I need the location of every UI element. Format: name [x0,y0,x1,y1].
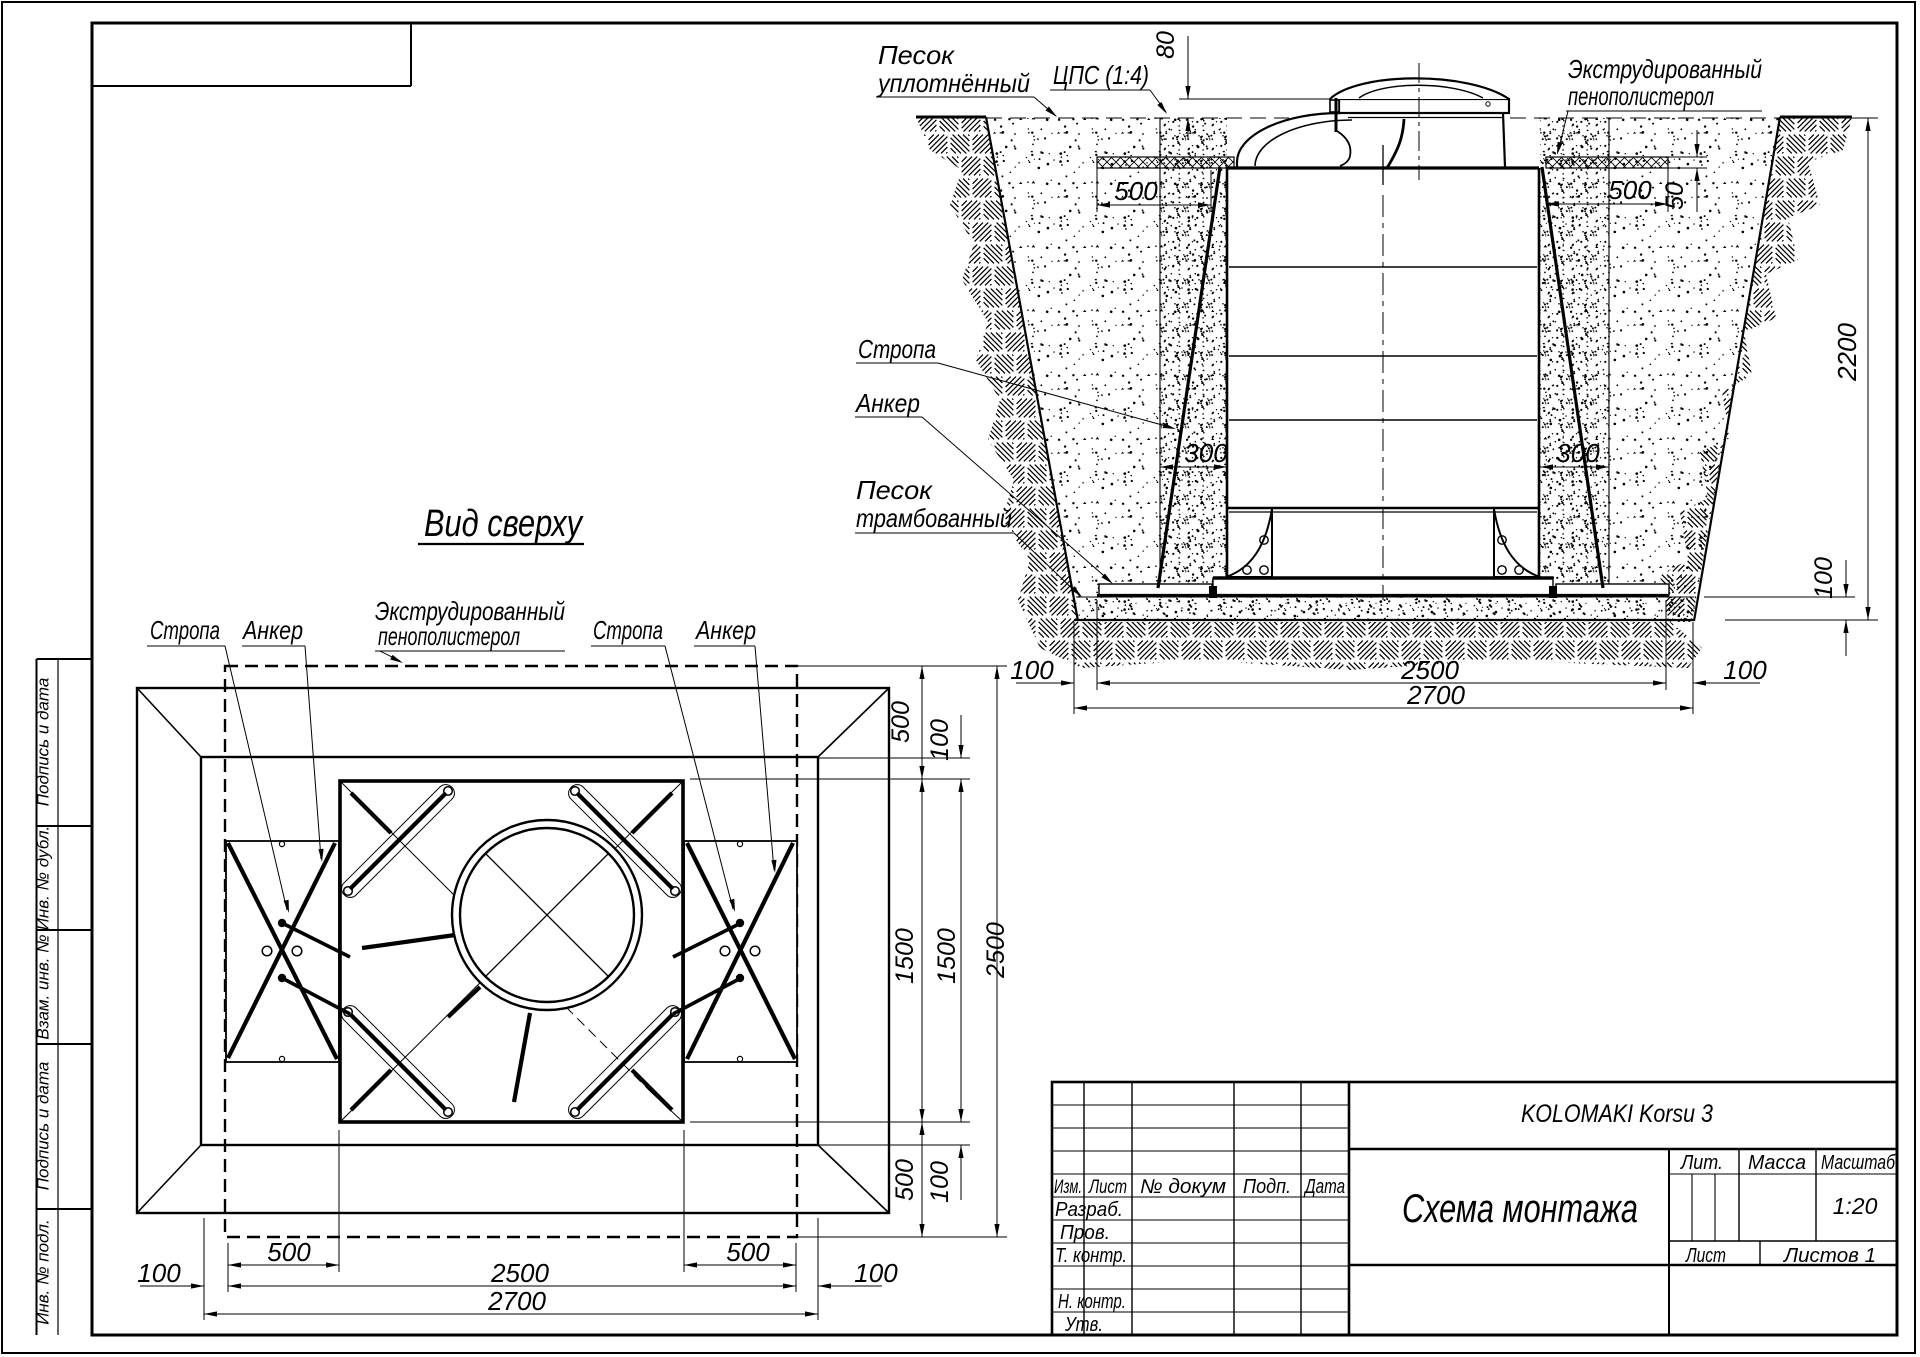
svg-text:2700: 2700 [487,1286,546,1316]
svg-text:Подпись и дата: Подпись и дата [34,678,53,807]
svg-text:300: 300 [1556,438,1600,468]
svg-text:Листов 1: Листов 1 [1782,1245,1876,1267]
svg-text:Экструдированный: Экструдированный [1568,54,1762,84]
svg-text:№ докум: № докум [1140,1176,1226,1198]
svg-text:Взам. инв. №: Взам. инв. № [34,934,53,1039]
svg-text:1500: 1500 [933,928,961,984]
svg-text:80: 80 [1152,31,1180,59]
svg-text:100: 100 [926,1161,954,1203]
svg-text:500: 500 [726,1237,770,1267]
svg-text:Стропа: Стропа [593,615,663,645]
svg-text:Пров.: Пров. [1060,1222,1110,1244]
svg-text:Инв. № подл.: Инв. № подл. [34,1219,53,1325]
svg-text:Песок: Песок [878,40,956,70]
svg-text:50: 50 [1661,182,1689,210]
svg-text:уплотнённый: уплотнённый [876,68,1030,98]
svg-text:100: 100 [926,719,954,761]
svg-text:Дата: Дата [1303,1176,1345,1198]
svg-text:500: 500 [267,1237,311,1267]
svg-text:KOLOMAKI Korsu 3: KOLOMAKI Korsu 3 [1521,1100,1713,1128]
svg-text:500: 500 [887,701,915,743]
svg-text:Анкер: Анкер [694,615,756,645]
svg-text:Подпись и дата: Подпись и дата [34,1062,53,1191]
svg-text:100: 100 [1723,655,1767,685]
svg-text:Масштаб: Масштаб [1821,1152,1896,1174]
svg-text:500: 500 [891,1159,919,1201]
svg-text:Утв.: Утв. [1064,1314,1103,1336]
svg-text:100: 100 [1810,557,1838,599]
svg-text:Изм.: Изм. [1054,1177,1082,1198]
svg-text:Лист: Лист [1087,1177,1127,1198]
svg-text:Анкер: Анкер [241,615,303,645]
svg-text:500: 500 [1608,175,1652,205]
svg-text:500: 500 [1114,176,1158,206]
svg-text:2700: 2700 [1406,680,1465,710]
svg-text:2500: 2500 [982,922,1010,979]
svg-text:Подп.: Подп. [1243,1176,1291,1198]
svg-text:300: 300 [1184,438,1228,468]
svg-text:1:20: 1:20 [1833,1193,1878,1219]
svg-text:Разраб.: Разраб. [1055,1199,1123,1221]
svg-text:Масса: Масса [1748,1152,1806,1174]
svg-text:2200: 2200 [1832,323,1862,382]
svg-text:Схема монтажа: Схема монтажа [1402,1187,1638,1231]
svg-text:Песок: Песок [856,475,934,505]
svg-text:Инв. № дубл.: Инв. № дубл. [34,826,53,931]
svg-text:Стропа: Стропа [858,334,936,364]
svg-text:Т. контр.: Т. контр. [1055,1245,1127,1267]
svg-text:100: 100 [854,1258,898,1288]
svg-text:пенополистерол: пенополистерол [378,621,520,651]
svg-text:2500: 2500 [490,1258,549,1288]
svg-text:трамбованный: трамбованный [856,503,1012,533]
svg-text:100: 100 [1010,655,1054,685]
svg-text:100: 100 [137,1258,181,1288]
svg-text:Стропа: Стропа [150,615,220,645]
svg-text:Н. контр.: Н. контр. [1058,1291,1126,1313]
svg-text:Лит.: Лит. [1679,1152,1723,1174]
svg-text:Вид сверху: Вид сверху [424,503,584,545]
svg-text:пенополистерол: пенополистерол [1568,81,1714,111]
svg-text:1500: 1500 [891,928,919,984]
svg-text:Анкер: Анкер [854,388,920,418]
svg-text:ЦПС (1:4): ЦПС (1:4) [1053,60,1149,90]
svg-text:Лист: Лист [1684,1245,1726,1267]
